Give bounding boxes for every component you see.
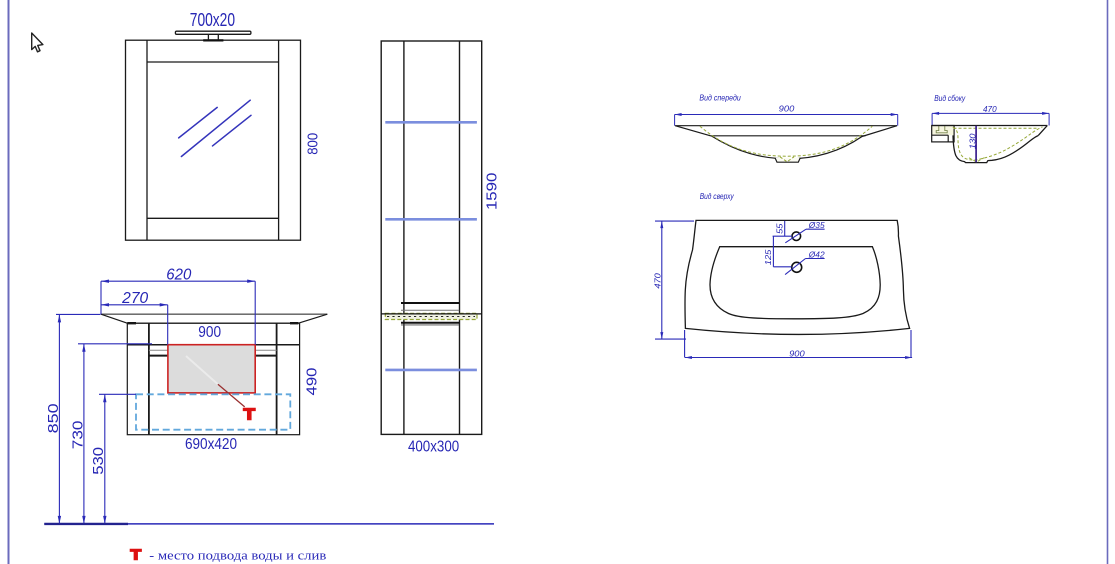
- svg-text:Вид сверху: Вид сверху: [700, 192, 735, 201]
- svg-text:Ø35: Ø35: [808, 220, 825, 230]
- svg-text:270: 270: [121, 290, 148, 307]
- svg-text:Вид сбоку: Вид сбоку: [934, 94, 966, 103]
- svg-text:900: 900: [198, 324, 221, 341]
- svg-text:Ø42: Ø42: [808, 249, 825, 259]
- svg-text:700x20: 700x20: [190, 10, 235, 30]
- svg-text:- место подвода воды и слив: - место подвода воды и слив: [149, 547, 326, 562]
- svg-text:490: 490: [305, 368, 321, 396]
- svg-text:T: T: [244, 405, 256, 423]
- svg-text:470: 470: [983, 104, 997, 114]
- svg-text:55: 55: [775, 223, 785, 234]
- svg-text:T: T: [130, 547, 141, 563]
- svg-text:1590: 1590: [484, 173, 500, 211]
- svg-text:850: 850: [45, 403, 62, 433]
- svg-text:470: 470: [653, 273, 663, 289]
- svg-text:730: 730: [70, 421, 87, 450]
- svg-text:900: 900: [789, 348, 805, 358]
- svg-text:690x420: 690x420: [185, 436, 237, 453]
- svg-text:400x300: 400x300: [408, 439, 459, 456]
- svg-text:530: 530: [90, 447, 107, 475]
- svg-text:620: 620: [166, 267, 191, 284]
- svg-text:800: 800: [306, 133, 322, 155]
- svg-text:Вид спереди: Вид спереди: [699, 93, 741, 102]
- svg-text:125: 125: [763, 249, 773, 265]
- svg-text:900: 900: [779, 104, 795, 114]
- svg-text:130: 130: [968, 133, 978, 149]
